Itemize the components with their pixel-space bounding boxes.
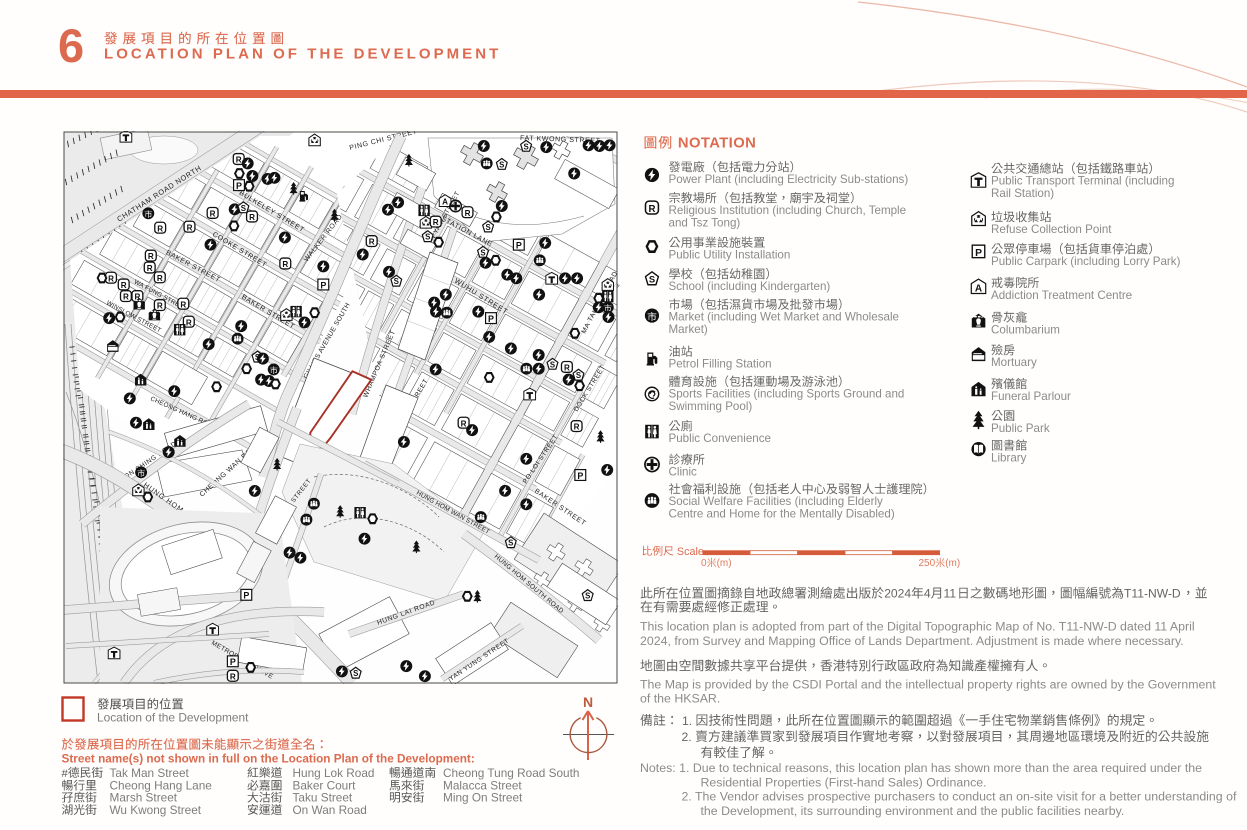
svg-text:Ming On Street: Ming On Street: [443, 791, 523, 805]
svg-text:4: 4: [924, 587, 931, 601]
svg-text:N: N: [583, 694, 593, 710]
svg-text:Scale: Scale: [674, 546, 704, 558]
svg-text:Market): Market): [669, 323, 708, 336]
svg-text:6: 6: [58, 19, 84, 72]
svg-text:Public Carpark (including Lorr: Public Carpark (including Lorry Park): [991, 255, 1181, 268]
svg-text:Mortuary: Mortuary: [991, 356, 1037, 369]
svg-text:2. The Vendor advises prospect: 2. The Vendor advises prospective purcha…: [682, 790, 1237, 804]
svg-text:Sports Facilities (including S: Sports Facilities (including Sports Grou…: [669, 388, 905, 401]
svg-text:Street name(s) not shown in fu: Street name(s) not shown in full on the …: [62, 752, 475, 765]
svg-text:0: 0: [701, 558, 707, 569]
svg-text:Residential Properties (First-: Residential Properties (First-hand Sales…: [701, 775, 987, 789]
svg-text:On Wan Road: On Wan Road: [293, 803, 367, 817]
svg-text:2024, from Survey and Mapping: 2024, from Survey and Mapping Office of …: [640, 634, 1184, 648]
svg-text:Public Park: Public Park: [991, 422, 1050, 435]
svg-text:This location plan is adopted: This location plan is adopted from part …: [640, 620, 1195, 634]
svg-text:The Map is provided by the CSD: The Map is provided by the CSDI Portal a…: [640, 677, 1216, 691]
svg-text:Clinic: Clinic: [669, 466, 698, 479]
svg-text:Market (including Wet Market a: Market (including Wet Market and Wholesa…: [669, 311, 899, 324]
svg-text:Swimming Pool): Swimming Pool): [669, 400, 753, 413]
svg-text:Rail Station): Rail Station): [991, 187, 1054, 200]
svg-text:Funeral Parlour: Funeral Parlour: [991, 390, 1071, 403]
svg-text:2024: 2024: [884, 587, 911, 601]
svg-text:Public Transport Terminal (inc: Public Transport Terminal (including: [991, 175, 1174, 188]
svg-text:of the HKSAR.: of the HKSAR.: [640, 692, 720, 706]
svg-text:Power Plant (including Electri: Power Plant (including Electricity Sub-s…: [669, 173, 909, 186]
svg-text:Religious Institution (includi: Religious Institution (including Church,…: [669, 204, 907, 217]
svg-text:Wu Kwong Street: Wu Kwong Street: [110, 803, 202, 817]
svg-text:Social Welfare Facilities (inc: Social Welfare Facilities (including Eld…: [669, 495, 884, 508]
svg-text:NOTATION: NOTATION: [678, 136, 756, 152]
svg-text:Public Utility Installation: Public Utility Installation: [669, 249, 791, 262]
svg-text:and Tsz Tong): and Tsz Tong): [669, 217, 741, 230]
svg-text:Library: Library: [991, 452, 1027, 465]
svg-text:250: 250: [919, 558, 936, 569]
svg-text:11: 11: [944, 587, 957, 601]
svg-text:Columbarium: Columbarium: [991, 323, 1060, 336]
svg-text:2.: 2.: [682, 730, 696, 744]
svg-text:(m): (m): [945, 558, 960, 569]
svg-text:Public Convenience: Public Convenience: [669, 432, 771, 445]
svg-text:(m): (m): [717, 558, 732, 569]
svg-text:Petrol Filling Station: Petrol Filling Station: [669, 358, 772, 371]
svg-text:Addiction Treatment Centre: Addiction Treatment Centre: [991, 289, 1132, 302]
svg-text:School (including Kindergarten: School (including Kindergarten): [669, 280, 831, 293]
svg-text:Location of the Development: Location of the Development: [97, 711, 249, 725]
svg-text:the Development, its surroundi: the Development, its surrounding environ…: [701, 804, 1125, 818]
svg-text:Centre and Home for the Mental: Centre and Home for the Mentally Disable…: [669, 508, 895, 521]
svg-text:Refuse Collection Point: Refuse Collection Point: [991, 223, 1112, 236]
svg-text:Notes: 1. Due to technical rea: Notes: 1. Due to technical reasons, this…: [640, 761, 1202, 775]
svg-text:T11-NW-D: T11-NW-D: [1124, 587, 1181, 601]
svg-text:LOCATION PLAN OF THE DEVELOPME: LOCATION PLAN OF THE DEVELOPMENT: [104, 46, 501, 63]
svg-text:#: #: [62, 768, 69, 780]
svg-text:1.: 1.: [679, 714, 696, 728]
